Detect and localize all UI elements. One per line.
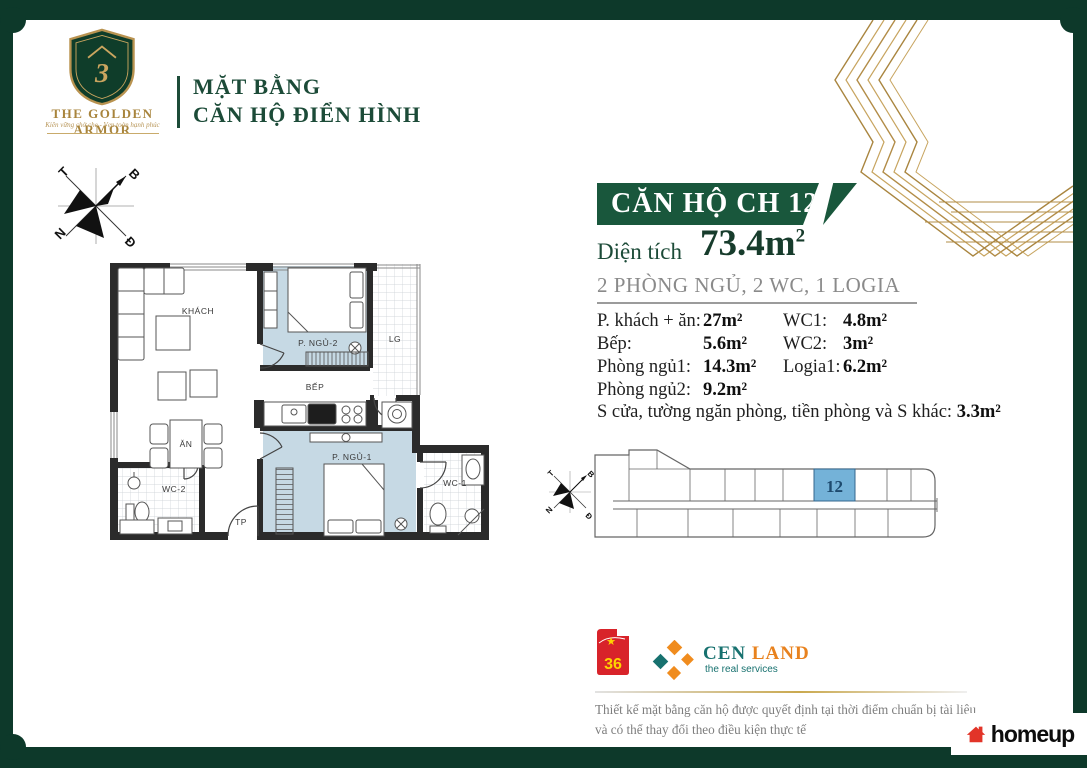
disclaimer-line1: Thiết kế mặt bằng căn hộ được quyết định… [595,700,1015,720]
detail-label: Logia1: [783,357,841,378]
divider-line [597,302,917,304]
other-area-label: S cửa, tường ngăn phòng, tiền phòng và S… [597,402,952,422]
brand-underline [47,133,159,134]
page-title-line2: CĂN HỘ ĐIỂN HÌNH [193,102,421,128]
detail-value: 6.2m² [843,357,887,378]
room-label-wc1: WC-1 [443,478,467,488]
detail-value: 3m² [843,334,873,355]
cenland-diamonds-icon [652,640,698,682]
unit-banner: CĂN HỘ CH 12 [597,183,819,225]
homeup-house-icon [964,723,988,745]
other-area-line: S cửa, tường ngăn phòng, tiền phòng và S… [597,402,1001,423]
detail-value: 14.3m² [703,357,756,378]
detail-label: Phòng ngủ2: [597,380,691,401]
other-area-value: 3.3m² [957,402,1001,422]
flag-36-logo: ★ 36 [595,627,631,677]
room-label-lg: LG [389,334,401,344]
detail-label: Bếp: [597,334,632,355]
area-value: 73.4m2 [700,222,805,265]
corner-decor [0,7,26,33]
land-text: LAND [752,643,810,664]
room-label-bep: BẾP [306,382,325,392]
flyer-page: 3 THE GOLDEN ARMOR Kiên vững chở che - V… [0,0,1087,768]
footer-divider [595,691,967,693]
room-label-wc2: WC-2 [162,484,186,494]
compass-south-label: N [52,225,69,242]
svg-text:3: 3 [94,58,109,89]
apartment-floor-plan: KHÁCH P. NGỦ-2 LG BẾP ĂN WC-2 TP P. NGỦ-… [98,252,506,545]
area-label: Diện tích [597,239,682,265]
golden-armor-shield-logo: 3 [63,28,141,106]
mini-compass: T B N Đ [545,464,595,520]
compass-east-label: Đ [122,234,139,251]
room-label-khach: KHÁCH [182,306,214,316]
compass-rose: T B N Đ [50,160,142,252]
cenland-wordmark: CEN LAND [703,643,810,665]
detail-value: 4.8m² [843,311,887,332]
room-label-ngu1: P. NGỦ-1 [332,451,372,462]
page-title-line1: MẶT BẰNG [193,74,321,100]
compass-north-label: B [126,166,142,183]
room-label-an: ĂN [180,439,193,449]
room-logia [373,264,417,396]
building-key-plan: 12 [593,446,943,548]
room-label-ngu2: P. NGỦ-2 [298,337,338,348]
svg-text:★: ★ [606,636,616,648]
detail-label: Phòng ngủ1: [597,357,691,378]
detail-label: WC1: [783,311,827,332]
header-divider [177,76,180,128]
corner-decor [0,734,26,760]
detail-value: 9.2m² [703,380,747,401]
unit-banner-label: CĂN HỘ CH 12 [597,183,819,225]
unit-number-label: 12 [826,477,843,496]
gold-lines-decoration [821,20,1073,292]
room-label-tp: TP [235,517,247,527]
cenland-tagline: the real services [705,664,778,675]
unit-config: 2 PHÒNG NGỦ, 2 WC, 1 LOGIA [597,273,900,298]
brand-tagline: Kiên vững chở che - Vẹn toàn hạnh phúc [30,121,175,129]
homeup-wordmark: homeup [991,721,1074,748]
detail-label: P. khách + ăn: [597,311,701,332]
detail-value: 27m² [703,311,742,332]
compass-south-label: N [545,505,555,516]
compass-west-label: T [56,164,72,180]
detail-label: WC2: [783,334,827,355]
cen-text: CEN [703,643,746,664]
flag-number: 36 [604,656,622,673]
homeup-logo: homeup [951,713,1087,755]
detail-value: 5.6m² [703,334,747,355]
